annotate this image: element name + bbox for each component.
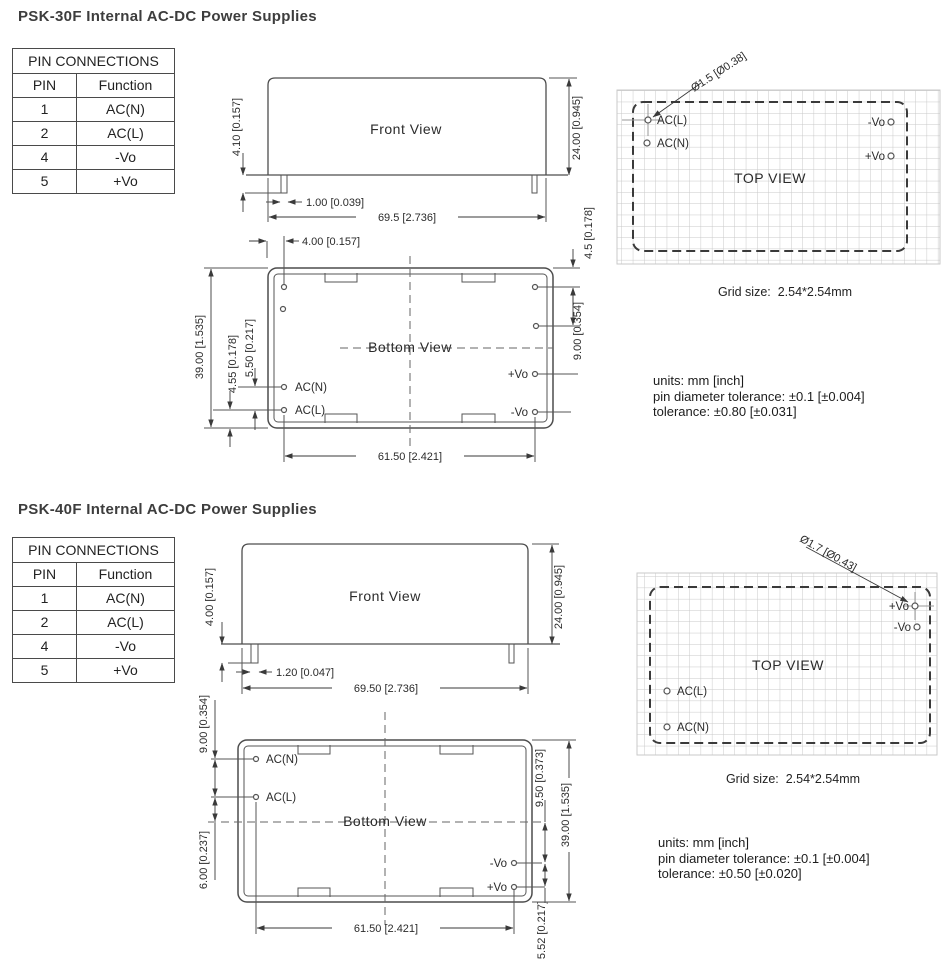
note-tolerance: tolerance: ±0.80 [±0.031] — [653, 404, 865, 420]
bottom-view-label: Bottom View — [343, 813, 427, 829]
front-view-label: Front View — [349, 588, 421, 604]
dim-left-b: 5.50 [0.217] — [244, 319, 256, 377]
dim-left-a: 9.00 [0.354] — [198, 695, 210, 753]
pin-label-acl: AC(L) — [266, 792, 296, 804]
dim-right-b: 9.00 [0.354] — [572, 302, 584, 360]
dim-height: 39.00 [1.535] — [194, 315, 206, 379]
psk30-grid-size-caption: Grid size: 2.54*2.54mm — [660, 285, 910, 299]
dim-pin-length: 4.00 [0.157] — [204, 568, 216, 626]
pin-label-acl: AC(L) — [657, 115, 687, 127]
note-pin-tolerance: pin diameter tolerance: ±0.1 [±0.004] — [658, 851, 870, 867]
pin-label-nvo: -Vo — [490, 858, 507, 870]
pin-pvo — [912, 603, 918, 609]
dim-right-b: 5.52 [0.217] — [536, 901, 548, 959]
pin — [533, 285, 538, 290]
front-view-label: Front View — [370, 121, 442, 137]
pin-pvo — [888, 153, 894, 159]
pin — [509, 644, 514, 663]
pin-label-pvo: +Vo — [865, 151, 885, 163]
pin-nvo — [512, 861, 517, 866]
pin-label-acl: AC(L) — [677, 686, 707, 698]
dim-body-height: 24.00 [0.945] — [571, 96, 583, 160]
psk30-notes: units: mm [inch] pin diameter tolerance:… — [653, 373, 865, 420]
pin-label-acn: AC(N) — [295, 382, 327, 394]
pin-acl — [664, 688, 670, 694]
dim-body-width: 69.5 [2.736] — [378, 212, 436, 224]
datasheet-page: PSK-30F Internal AC-DC Power Supplies PI… — [0, 0, 952, 966]
dim-pin-span: 61.50 [2.421] — [378, 451, 442, 463]
psk30-top-view: Ø1.5 [Ø0.38] AC(L) AC(N) -Vo +Vo TOP VIE… — [617, 50, 940, 264]
dim-pin-width: 1.00 [0.039] — [306, 197, 364, 209]
dim-right-a: 9.50 [0.373] — [534, 749, 546, 807]
psk40-notes: units: mm [inch] pin diameter tolerance:… — [658, 835, 870, 882]
pin-nvo — [888, 119, 894, 125]
pin-acn — [282, 385, 287, 390]
pin-label-nvo: -Vo — [894, 622, 911, 634]
pin — [282, 285, 287, 290]
psk40-bottom-view: Bottom View AC(N) AC(L) -Vo +Vo 9.00 [0.… — [198, 695, 576, 959]
pin-nvo — [914, 624, 920, 630]
pin-nvo — [533, 410, 538, 415]
dim-right-a: 4.5 [0.178] — [583, 207, 595, 259]
dim-body-height: 24.00 [0.945] — [553, 565, 565, 629]
top-view-label: TOP VIEW — [752, 657, 824, 673]
pin-acn — [644, 140, 650, 146]
pin-diameter-label: Ø1.7 [Ø0.43] — [798, 533, 859, 574]
pin-label-acn: AC(N) — [677, 722, 709, 734]
dim-pin-span: 61.50 [2.421] — [354, 923, 418, 935]
pin-diameter-label: Ø1.5 [Ø0.38] — [689, 50, 748, 94]
top-view-label: TOP VIEW — [734, 170, 806, 186]
pin-acl — [254, 795, 259, 800]
note-tolerance: tolerance: ±0.50 [±0.020] — [658, 866, 870, 882]
pin-pvo — [533, 372, 538, 377]
pin-label-acn: AC(N) — [266, 754, 298, 766]
pin-pvo — [512, 885, 517, 890]
dim-pin-width: 1.20 [0.047] — [276, 667, 334, 679]
pin — [281, 307, 286, 312]
bottom-view-label: Bottom View — [368, 339, 452, 355]
psk40-top-view: Ø1.7 [Ø0.43] +Vo -Vo AC(L) AC(N) TOP VIE… — [637, 533, 937, 755]
psk40-grid-size-caption: Grid size: 2.54*2.54mm — [668, 772, 918, 786]
pin-label-pvo: +Vo — [508, 369, 528, 381]
psk30-front-view: Front View 4.10 [0.157] 24.00 [0.945] 1.… — [231, 78, 583, 224]
pin-label-pvo: +Vo — [487, 882, 507, 894]
pin-acl — [645, 117, 651, 123]
dim-body-width: 69.50 [2.736] — [354, 683, 418, 695]
pin — [532, 175, 537, 193]
psk30-bottom-view: Bottom View AC(N) AC(L) +Vo -Vo — [194, 207, 595, 463]
note-units: units: mm [inch] — [658, 835, 870, 851]
pin — [281, 175, 287, 193]
pin-acn — [254, 757, 259, 762]
note-pin-tolerance: pin diameter tolerance: ±0.1 [±0.004] — [653, 389, 865, 405]
dim-pin-length: 4.10 [0.157] — [231, 98, 243, 156]
note-units: units: mm [inch] — [653, 373, 865, 389]
dim-left-b: 6.00 [0.237] — [198, 831, 210, 889]
pin — [251, 644, 258, 663]
dim-left-a: 4.55 [0.178] — [227, 335, 239, 393]
pin-label-acn: AC(N) — [657, 138, 689, 150]
pin-label-nvo: -Vo — [868, 117, 885, 129]
psk40-drawing: Ø1.7 [Ø0.43] +Vo -Vo AC(L) AC(N) TOP VIE… — [0, 490, 952, 966]
dim-pin-offset: 4.00 [0.157] — [302, 236, 360, 248]
pin-label-nvo: -Vo — [511, 407, 528, 419]
psk40-front-view: Front View 4.00 [0.157] 24.00 [0.945] 1.… — [204, 544, 565, 695]
pin-label-pvo: +Vo — [889, 601, 909, 613]
pin-acn — [664, 724, 670, 730]
pin-label-acl: AC(L) — [295, 405, 325, 417]
pin — [534, 324, 539, 329]
dim-height: 39.00 [1.535] — [560, 783, 572, 847]
pin-acl — [282, 408, 287, 413]
